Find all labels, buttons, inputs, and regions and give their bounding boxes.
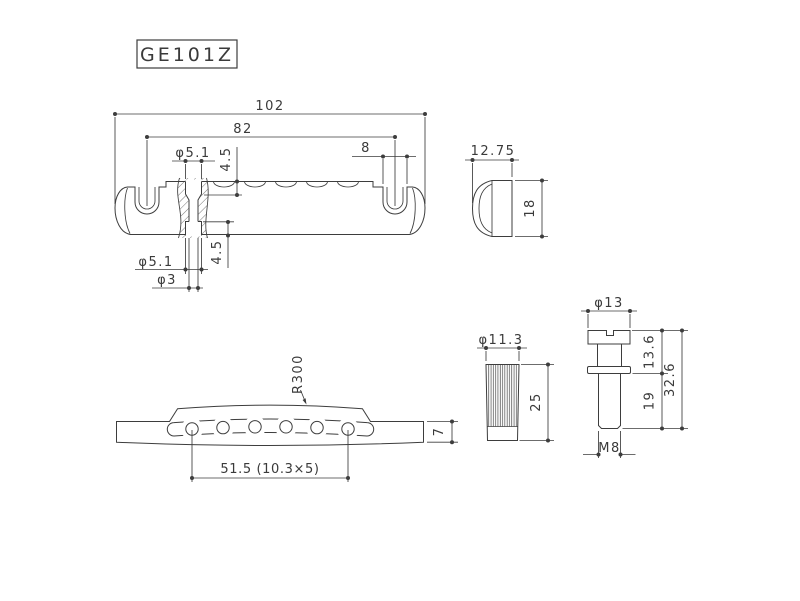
dim-notch-width: 8 xyxy=(352,141,416,184)
dim-bushing-length-label: 25 xyxy=(529,392,544,412)
end-view-dome-arc xyxy=(479,184,492,233)
dim-bushing-diameter: φ11.3 xyxy=(477,333,527,361)
dim-bushing-length: 25 xyxy=(520,363,555,443)
stud-flange xyxy=(588,367,631,374)
side-body-outline xyxy=(115,182,425,235)
dim-end-width-label: 12.75 xyxy=(471,144,516,159)
dim-exit-hole-label: φ3 xyxy=(157,273,177,288)
dim-stud-spacing-label: 82 xyxy=(233,122,253,137)
dim-recess-depth-top-label: 4.5 xyxy=(219,146,234,171)
dim-stud-thread-size-label: M8 xyxy=(598,441,621,456)
tailpiece-side-view: 102 82 8 φ5.1 4.5 4.5 xyxy=(113,99,427,292)
stud-view: φ13 M8 13.6 19 32.6 xyxy=(581,296,688,458)
technical-drawing: GE101Z 102 82 8 xyxy=(0,0,800,601)
knurl-texture xyxy=(488,365,518,427)
dim-bushing-diameter-label: φ11.3 xyxy=(478,333,523,348)
dim-counterbore-label: φ5.1 xyxy=(138,255,173,270)
dim-recess-depth-bottom-label: 4.5 xyxy=(210,239,225,264)
anchor-bushing-view: φ11.3 25 xyxy=(477,333,554,443)
dim-recess-depth-bottom: 4.5 xyxy=(203,220,234,268)
part-label-box: GE101Z xyxy=(137,40,237,68)
drawing-sheet: GE101Z 102 82 8 xyxy=(0,0,800,601)
left-end-edge-arc xyxy=(125,188,130,234)
dim-stud-upper-length: 13.6 xyxy=(643,329,665,376)
dim-stud-head-diameter: φ13 xyxy=(581,296,637,328)
dim-overall-length-label: 102 xyxy=(255,99,284,114)
radius-callout-label: R300 xyxy=(291,354,306,394)
dim-stud-overall-length: 32.6 xyxy=(663,329,684,431)
dim-stud-head-diameter-label: φ13 xyxy=(594,296,624,311)
dim-string-spacing-label: 51.5 (10.3×5) xyxy=(220,462,319,477)
dim-string-spacing: 51.5 (10.3×5) xyxy=(190,430,350,482)
dim-stud-thread-length-label: 19 xyxy=(643,391,658,411)
dim-string-hole-top-label: φ5.1 xyxy=(175,146,210,161)
dim-counterbore: φ5.1 xyxy=(135,238,208,274)
dim-end-height: 18 xyxy=(515,179,548,239)
dim-end-thickness-label: 7 xyxy=(432,427,447,437)
tailpiece-end-view: 12.75 18 xyxy=(465,144,548,239)
dim-notch-width-label: 8 xyxy=(361,141,371,156)
front-outline xyxy=(117,405,424,445)
stud-neck xyxy=(598,344,622,367)
part-label-text: GE101Z xyxy=(140,44,234,66)
stud-shaft xyxy=(599,374,621,429)
dim-string-hole-top: φ5.1 xyxy=(172,146,215,179)
radius-callout: R300 xyxy=(291,354,307,404)
right-end-edge-arc xyxy=(410,188,415,234)
dim-stud-overall-length-label: 32.6 xyxy=(663,362,678,397)
dim-overall-length: 102 xyxy=(113,99,427,204)
dim-end-height-label: 18 xyxy=(523,198,538,218)
dim-stud-upper-length-label: 13.6 xyxy=(643,334,658,369)
dim-stud-thread-size: M8 xyxy=(583,431,636,458)
dim-stud-thread-length: 19 xyxy=(643,374,665,431)
dim-end-thickness: 7 xyxy=(427,420,458,445)
stud-head xyxy=(588,331,630,345)
tailpiece-front-view: R300 7 51.5 (10.3×5) xyxy=(117,354,459,482)
